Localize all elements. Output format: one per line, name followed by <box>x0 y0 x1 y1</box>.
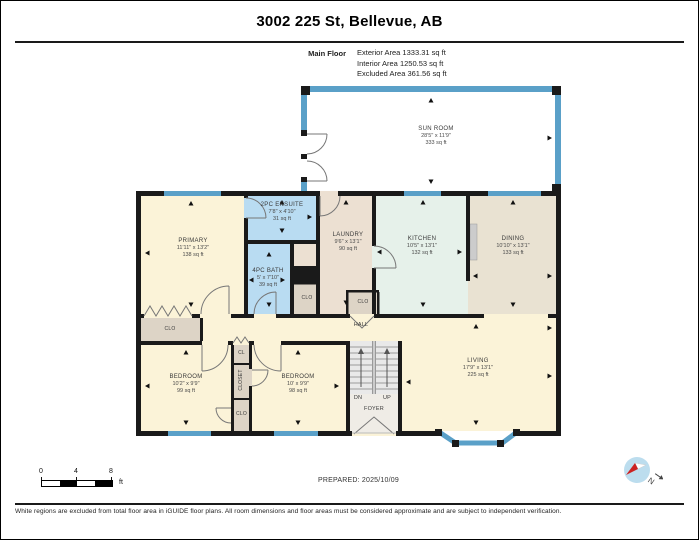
scale-tick-8-label: 8 <box>109 468 113 475</box>
window-kitchen <box>404 191 441 196</box>
floor-summary-label: Main Floor <box>241 49 346 58</box>
prepared-date: PREPARED: 2025/10/09 <box>318 477 399 484</box>
disclaimer-text: White regions are excluded from total fl… <box>15 508 684 515</box>
counter-icon <box>470 224 477 260</box>
closet-label-cl: CL <box>226 350 257 356</box>
room-label-sunroom: SUN ROOM 28'5" x 11'9" 333 sq ft <box>376 126 496 146</box>
header-divider <box>15 41 684 43</box>
page-title: 3002 225 St, Bellevue, AB <box>1 13 698 30</box>
scale-tick-4-label: 4 <box>74 468 78 475</box>
room-label-hall: HALL <box>336 322 386 328</box>
room-label-living: LIVING 17'9" x 13'1" 225 sq ft <box>433 358 523 378</box>
scale-tick-0-label: 0 <box>39 468 43 475</box>
exterior-area-value: Exterior Area 1333.31 sq ft <box>357 48 447 59</box>
excluded-area-value: Excluded Area 361.56 sq ft <box>357 69 447 80</box>
footer-divider <box>15 503 684 505</box>
closet-label-left: CLO <box>150 326 190 332</box>
stairs-up-label: UP <box>375 395 399 401</box>
closet-label-bath: CLO <box>286 295 328 301</box>
stairs-down-label: DN <box>346 395 370 401</box>
floor-summary-values: Exterior Area 1333.31 sq ft Interior Are… <box>357 48 447 80</box>
room-label-laundry: LAUNDRY 9'6" x 13'1" 90 sq ft <box>318 232 378 252</box>
room-label-kitchen: KITCHEN 10'5" x 13'1" 132 sq ft <box>387 236 457 256</box>
floor-plan-page: 3002 225 St, Bellevue, AB Main Floor Ext… <box>0 0 699 540</box>
room-label-primary: PRIMARY 11'11" x 13'2" 138 sq ft <box>143 238 243 258</box>
compass-icon: N <box>621 454 663 496</box>
room-label-foyer: FOYER <box>350 406 398 412</box>
window-dining <box>488 191 541 196</box>
interior-area-value: Interior Area 1250.53 sq ft <box>357 59 447 70</box>
closet-label-hall: CLO <box>343 299 383 305</box>
room-label-bedroom-left: BEDROOM 10'2" x 9'9" 99 sq ft <box>142 374 230 394</box>
room-label-bedroom-right: BEDROOM 10' x 9'9" 98 sq ft <box>254 374 342 394</box>
floor-plan-drawing: SUN ROOM 28'5" x 11'9" 333 sq ft PRIMARY… <box>136 86 566 451</box>
scale-bar-segments <box>41 480 113 487</box>
closet-label-closet: CLOSET <box>238 360 244 400</box>
closet-label-column: CLO <box>226 411 257 417</box>
window-primary <box>164 191 221 196</box>
room-label-bath: 4PC BATH 5' x 7'10" 39 sq ft <box>243 268 293 288</box>
window-bedroom-left <box>168 431 211 436</box>
scale-bar: 0 4 8 ft <box>41 468 181 490</box>
room-label-ensuite: 2PC ENSUITE 7'8" x 4'10" 31 sq ft <box>246 202 318 222</box>
window-bedroom-right <box>274 431 318 436</box>
chimney-block <box>294 266 318 282</box>
room-label-dining: DINING 10'10" x 13'1" 133 sq ft <box>478 236 548 256</box>
scale-unit-label: ft <box>119 479 123 486</box>
